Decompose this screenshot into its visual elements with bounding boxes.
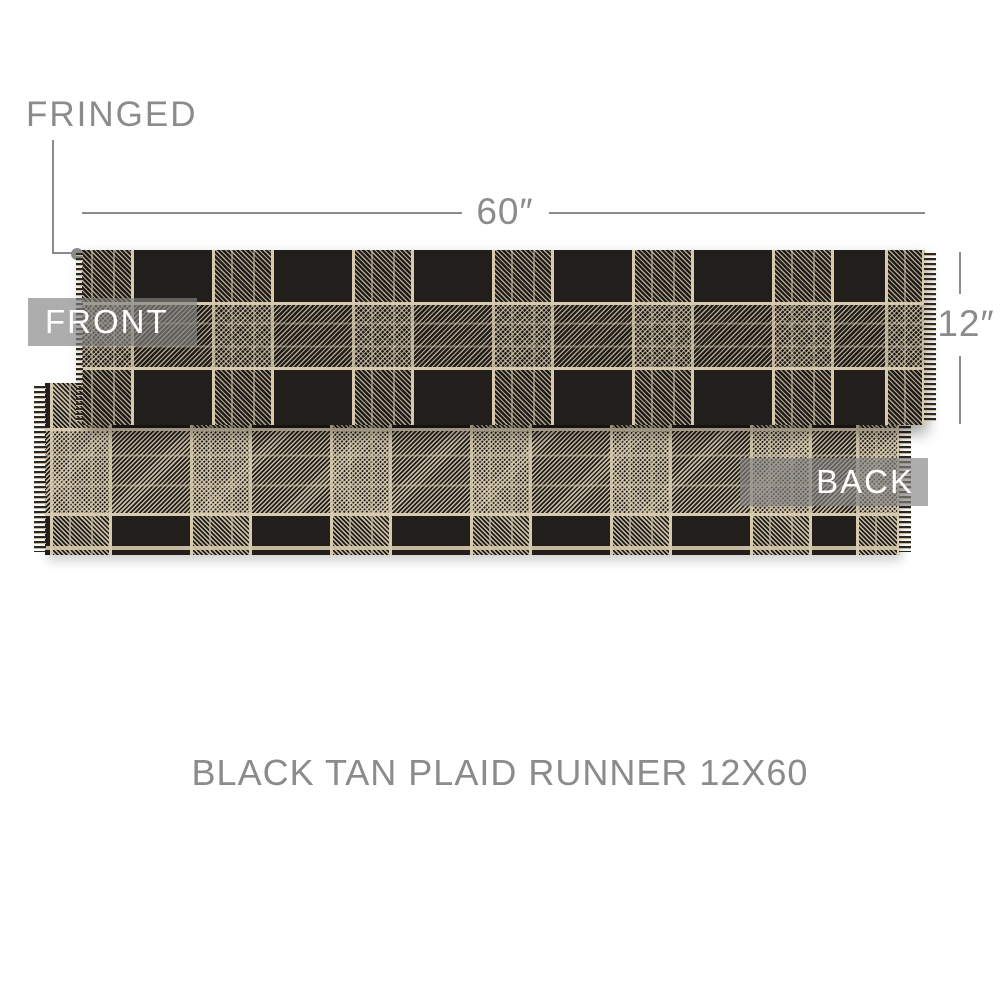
back-label: BACK — [816, 463, 914, 500]
back-label-badge: BACK — [740, 458, 928, 506]
fringed-leader-line-vertical — [52, 140, 54, 254]
width-dimension-label: 60″ — [430, 190, 580, 234]
width-dimension-line-right — [549, 212, 925, 214]
product-caption: BLACK TAN PLAID RUNNER 12X60 — [0, 752, 1000, 794]
front-runner-fabric — [82, 250, 925, 425]
fringe-right — [924, 253, 936, 422]
plaid-horizontal-band — [82, 302, 925, 370]
width-dimension-line-left — [82, 212, 462, 214]
height-dimension-label: 12″ — [925, 302, 1000, 346]
height-dimension-line-top — [959, 252, 961, 294]
height-dimension-line-bottom — [959, 356, 961, 424]
fringed-label: FRINGED — [26, 95, 198, 135]
front-label: FRONT — [45, 303, 169, 340]
plaid-hem-line — [45, 546, 900, 550]
front-runner — [82, 250, 925, 425]
product-dimension-diagram: FRONT BACK FRINGED 60″ 12″ BLACK TAN PLA… — [0, 0, 1000, 1000]
front-label-badge: FRONT — [28, 298, 197, 346]
fringe-left — [34, 386, 46, 552]
